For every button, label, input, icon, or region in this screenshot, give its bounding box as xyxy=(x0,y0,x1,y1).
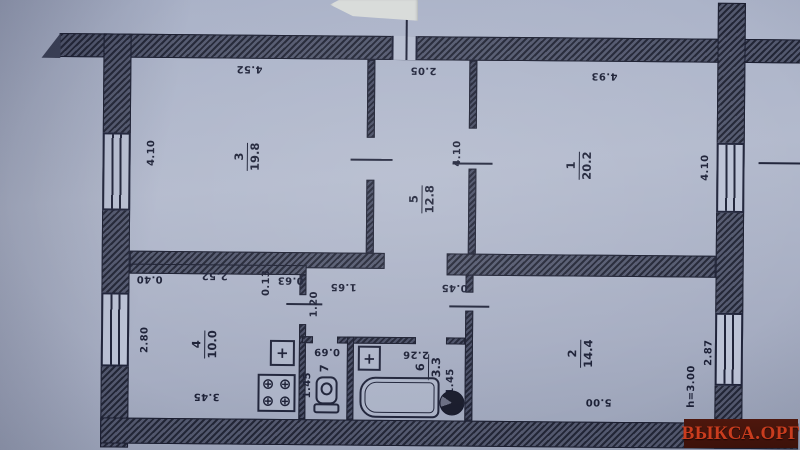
window-room3 xyxy=(102,132,131,210)
sink-cross: + xyxy=(276,344,289,362)
dim-room5-door: 4.10 xyxy=(452,140,463,166)
dim-wc-side: 1.45 xyxy=(302,372,313,398)
partition-room3-hall-lower xyxy=(366,180,375,253)
tick-top-extension xyxy=(405,18,407,60)
room-3-label: 3 19.8 xyxy=(233,142,263,171)
room-number: 2 xyxy=(566,339,579,367)
partition-hall-room1-upper xyxy=(469,61,478,129)
sink-cross: + xyxy=(363,349,376,367)
partition-wc-bath xyxy=(346,337,354,420)
dim-kitchen-bottom: 3.45 xyxy=(193,391,219,402)
wall-top-pointed-end xyxy=(41,33,60,58)
dim-kitchen-left: 2.80 xyxy=(139,327,150,353)
window-room1 xyxy=(716,143,745,213)
kitchen-sink-icon: + xyxy=(270,340,295,366)
water-heater-icon xyxy=(439,390,464,415)
room-area: 19.8 xyxy=(249,142,262,170)
room-number: 5 xyxy=(407,185,420,213)
bathtub-icon xyxy=(359,377,439,419)
room-number: 4 xyxy=(190,330,203,358)
wall-top xyxy=(59,33,800,63)
toilet-tank xyxy=(313,403,339,413)
room-7-label: 7 xyxy=(318,364,331,372)
dim-kitchen-door: 1.20 xyxy=(309,291,320,317)
wall-left xyxy=(100,33,132,447)
dim-hallway-top: 1.65 xyxy=(330,281,356,292)
room-4-label: 4 10.0 xyxy=(190,330,220,359)
partition-hall-room2-lower xyxy=(464,311,473,421)
toilet-ring xyxy=(321,382,333,395)
room-2-label: 2 14.4 xyxy=(566,339,596,368)
dim-wc-top: 0.69 xyxy=(314,346,340,357)
partition-wc-top-left xyxy=(302,336,313,343)
bathtub-inner xyxy=(364,382,434,414)
room-number: 3 xyxy=(233,142,246,170)
room-1-label: 1 20.2 xyxy=(565,151,595,180)
floorplan-drawing: 3 19.8 5 12.8 1 20.2 4 10.0 7 6 3.3 2 xyxy=(0,0,800,450)
floorplan-photo: 3 19.8 5 12.8 1 20.2 4 10.0 7 6 3.3 2 xyxy=(0,0,800,450)
tick-room2-door xyxy=(449,305,489,307)
dim-room1-top: 4.93 xyxy=(591,70,617,81)
dim-bath-top: 2.26 xyxy=(403,349,429,360)
dim-room1-right: 4.10 xyxy=(700,154,711,180)
dim-room2-door-seg: 0.45 xyxy=(441,282,467,293)
dim-room3-left: 4.10 xyxy=(146,140,157,166)
room-number: 7 xyxy=(318,364,331,372)
room-area: 20.2 xyxy=(581,151,594,179)
burner-icon: ⊕ xyxy=(279,377,292,392)
partition-room3-hall-upper xyxy=(367,60,376,138)
dim-ceiling-height: h=3.00 xyxy=(686,365,697,408)
watermark-badge: ВЫКСА.ОРГ xyxy=(684,419,798,448)
dim-kitchen-top: 2.52 xyxy=(201,270,227,281)
room-area: 14.4 xyxy=(582,339,595,367)
dim-room2-right: 2.87 xyxy=(703,340,714,366)
stove-icon: ⊕ ⊕ ⊕ ⊕ xyxy=(257,374,295,412)
partition-bath-top-right xyxy=(446,337,465,344)
dim-kitchen-offset: 0.40 xyxy=(136,273,162,284)
window-kitchen xyxy=(101,292,130,366)
room-area: 10.0 xyxy=(206,330,219,358)
watermark-text: ВЫКСА.ОРГ xyxy=(682,423,800,445)
tick-room3-door xyxy=(351,159,393,161)
dim-room3-top: 4.52 xyxy=(236,63,262,74)
window-room2 xyxy=(715,313,744,386)
dim-room2-bottom: 5.00 xyxy=(585,396,611,407)
wall-mid-right xyxy=(447,253,716,277)
dim-hall5-top: 2.05 xyxy=(410,65,436,76)
burner-icon: ⊕ xyxy=(262,394,275,409)
partition-hall-room1-lower xyxy=(468,169,477,254)
burner-icon: ⊕ xyxy=(279,394,292,409)
dim-kitchen-door-seg: 0.63 xyxy=(277,274,303,285)
burner-icon: ⊕ xyxy=(262,377,275,392)
room-number: 1 xyxy=(565,151,578,179)
tick-right-window xyxy=(759,162,800,164)
bath-sink-icon: + xyxy=(358,346,381,371)
room-area: 12.8 xyxy=(424,185,437,213)
dim-wall-step: 0.13 xyxy=(261,270,272,296)
room-5-label: 5 12.8 xyxy=(407,185,437,214)
